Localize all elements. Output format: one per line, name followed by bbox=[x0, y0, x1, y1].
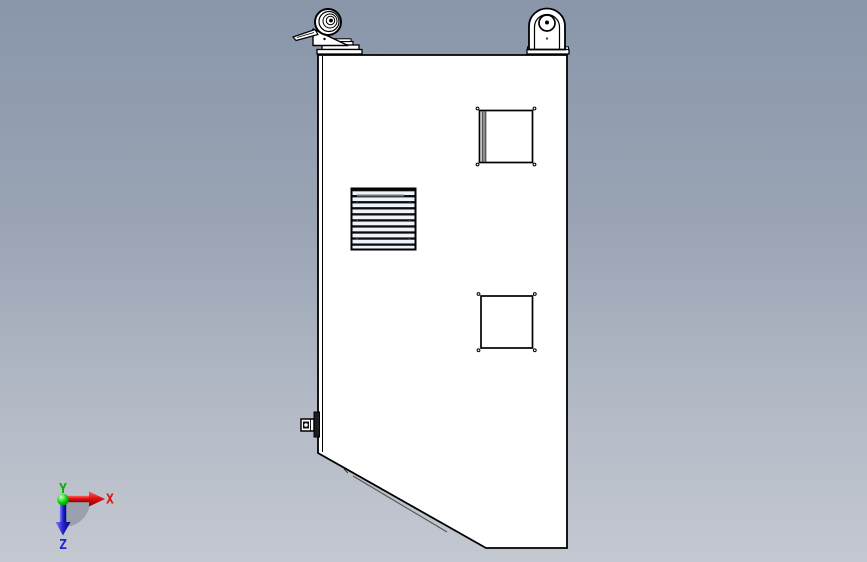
axis-z-arrow-shaft bbox=[60, 503, 66, 523]
vent-grille[interactable] bbox=[352, 189, 416, 250]
axis-triad: Y X Z bbox=[56, 482, 115, 553]
bracket-back-plate bbox=[314, 412, 320, 437]
axis-x-arrow-shaft bbox=[66, 496, 89, 502]
left-caster-hub-dot bbox=[329, 19, 333, 23]
axis-x-label: X bbox=[106, 493, 114, 508]
side-latch-bracket[interactable] bbox=[301, 412, 320, 437]
axis-origin-ball bbox=[57, 494, 69, 506]
cabinet-model[interactable] bbox=[293, 9, 569, 549]
upper-panel-frame[interactable] bbox=[480, 111, 533, 163]
right-caster-bolt-dot bbox=[546, 37, 548, 39]
cad-viewport[interactable]: Y X Z bbox=[0, 0, 867, 562]
left-caster-bolt-dot bbox=[323, 38, 325, 40]
lower-access-panel[interactable] bbox=[477, 293, 536, 352]
left-caster[interactable] bbox=[293, 9, 362, 54]
right-caster[interactable] bbox=[527, 9, 569, 55]
vent-grille-shadow-bar bbox=[357, 195, 404, 197]
lower-panel-frame[interactable] bbox=[481, 296, 533, 348]
model-canvas[interactable]: Y X Z bbox=[0, 0, 867, 562]
right-caster-hub-dot bbox=[545, 21, 549, 25]
axis-z-arrow-head bbox=[56, 522, 71, 536]
bracket-pin-dot bbox=[304, 423, 308, 427]
upper-access-panel[interactable] bbox=[476, 107, 536, 166]
vent-grille-slats bbox=[352, 189, 415, 249]
left-caster-base-flange bbox=[317, 50, 362, 55]
axis-x-arrow-head bbox=[89, 492, 105, 507]
axis-z-label: Z bbox=[59, 538, 67, 553]
